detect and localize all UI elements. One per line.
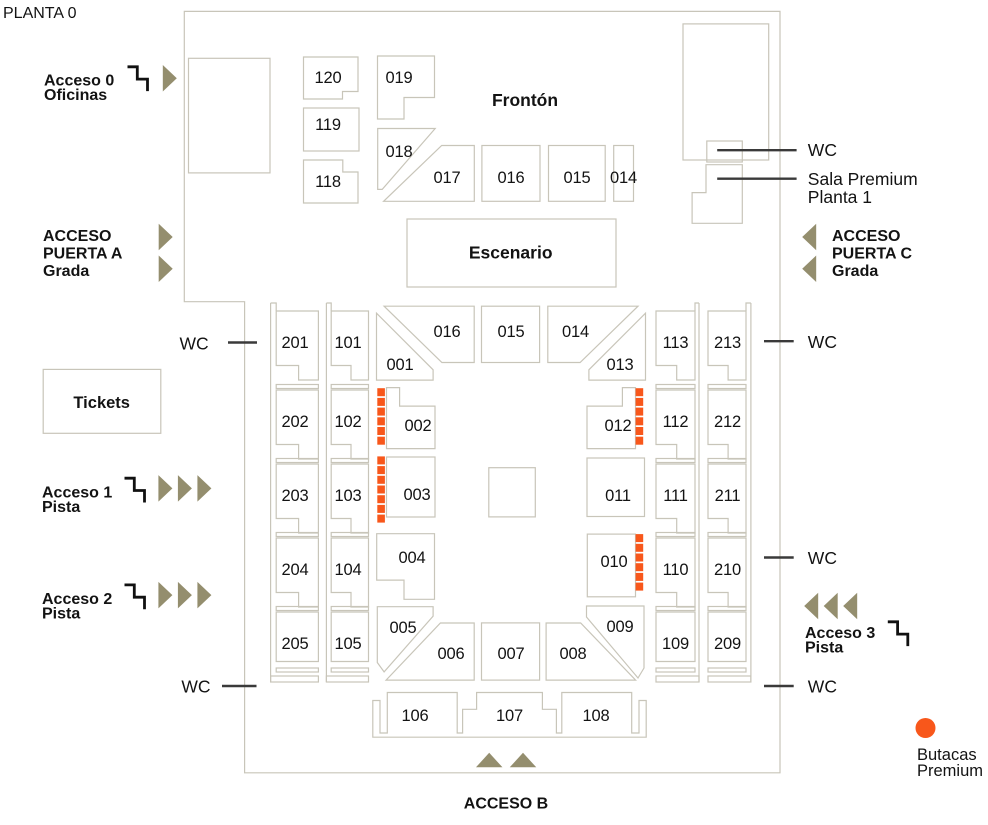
svg-text:108: 108: [583, 707, 610, 725]
svg-text:109: 109: [662, 635, 689, 653]
svg-text:Premium: Premium: [917, 762, 983, 780]
svg-text:211: 211: [715, 487, 741, 505]
svg-text:018: 018: [386, 143, 413, 161]
svg-text:WC: WC: [181, 677, 210, 697]
svg-text:005: 005: [390, 619, 417, 637]
svg-text:006: 006: [438, 645, 465, 663]
svg-text:119: 119: [315, 116, 341, 134]
svg-text:PUERTA C: PUERTA C: [832, 245, 912, 262]
svg-text:Frontón: Frontón: [492, 90, 558, 110]
svg-text:Tickets: Tickets: [73, 394, 130, 412]
svg-text:Planta 1: Planta 1: [808, 187, 872, 207]
svg-text:015: 015: [498, 323, 525, 341]
svg-text:015: 015: [564, 169, 591, 187]
svg-text:205: 205: [282, 635, 309, 653]
svg-text:ACCESO: ACCESO: [832, 228, 900, 245]
svg-text:WC: WC: [808, 332, 837, 352]
svg-text:009: 009: [607, 618, 634, 636]
svg-text:019: 019: [386, 69, 413, 87]
svg-text:013: 013: [607, 356, 634, 374]
svg-text:PLANTA 0: PLANTA 0: [3, 5, 77, 22]
svg-text:Grada: Grada: [43, 263, 89, 280]
svg-text:111: 111: [663, 487, 688, 505]
svg-text:101: 101: [335, 334, 362, 352]
svg-text:004: 004: [399, 549, 426, 567]
svg-text:PUERTA A: PUERTA A: [43, 245, 123, 262]
svg-text:110: 110: [663, 561, 689, 579]
svg-text:201: 201: [282, 334, 309, 352]
svg-text:113: 113: [663, 334, 689, 352]
svg-text:Escenario: Escenario: [469, 243, 553, 263]
svg-text:Oficinas: Oficinas: [44, 87, 107, 104]
svg-text:102: 102: [335, 413, 362, 431]
svg-text:008: 008: [560, 645, 587, 663]
svg-text:003: 003: [404, 486, 431, 504]
svg-text:210: 210: [714, 561, 741, 579]
svg-text:007: 007: [498, 645, 525, 663]
svg-text:014: 014: [562, 323, 589, 341]
svg-text:106: 106: [402, 707, 429, 725]
svg-text:WC: WC: [808, 548, 837, 568]
svg-text:104: 104: [335, 561, 362, 579]
svg-text:WC: WC: [808, 140, 837, 160]
svg-text:WC: WC: [808, 677, 837, 697]
svg-text:213: 213: [714, 334, 741, 352]
svg-text:Pista: Pista: [805, 640, 843, 657]
svg-text:105: 105: [335, 635, 362, 653]
svg-text:Pista: Pista: [42, 499, 80, 516]
svg-text:Pista: Pista: [42, 606, 80, 623]
svg-text:203: 203: [282, 487, 309, 505]
svg-text:001: 001: [387, 356, 414, 374]
svg-text:010: 010: [601, 553, 628, 571]
svg-text:103: 103: [335, 487, 362, 505]
svg-text:112: 112: [663, 413, 689, 431]
svg-text:ACCESO B: ACCESO B: [464, 796, 548, 813]
svg-text:212: 212: [714, 413, 741, 431]
svg-text:120: 120: [315, 69, 342, 87]
svg-text:016: 016: [498, 169, 525, 187]
svg-text:WC: WC: [179, 333, 208, 353]
svg-text:209: 209: [714, 635, 741, 653]
svg-text:Sala Premium: Sala Premium: [808, 169, 918, 189]
svg-text:202: 202: [282, 413, 309, 431]
svg-text:107: 107: [496, 707, 523, 725]
svg-text:011: 011: [605, 487, 631, 505]
svg-text:017: 017: [434, 169, 461, 187]
svg-text:ACCESO: ACCESO: [43, 228, 111, 245]
svg-text:Grada: Grada: [832, 263, 878, 280]
svg-text:204: 204: [282, 561, 309, 579]
svg-text:014: 014: [610, 169, 637, 187]
svg-text:016: 016: [434, 323, 461, 341]
svg-text:118: 118: [315, 173, 341, 191]
svg-text:002: 002: [405, 417, 432, 435]
svg-text:012: 012: [605, 417, 632, 435]
